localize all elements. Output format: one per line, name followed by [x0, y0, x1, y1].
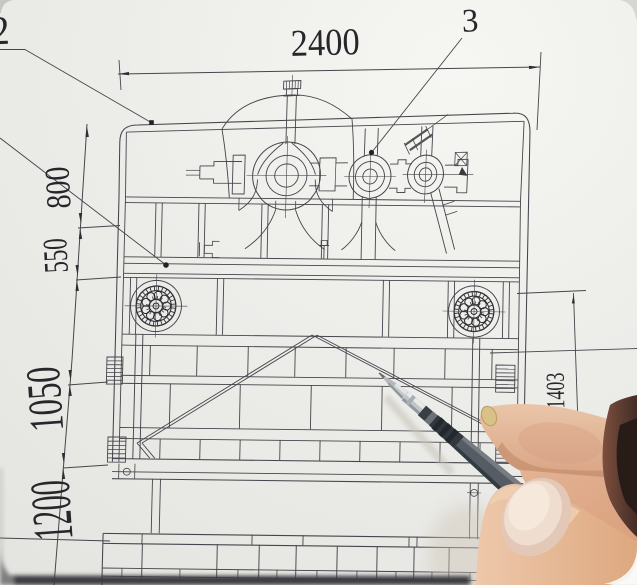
svg-text:550: 550 [37, 237, 76, 273]
svg-text:800: 800 [38, 166, 79, 210]
svg-text:1050: 1050 [15, 365, 74, 434]
svg-text:2400: 2400 [290, 21, 360, 65]
svg-text:3: 3 [461, 3, 479, 40]
svg-text:1403: 1403 [540, 372, 570, 408]
svg-text:1200: 1200 [17, 478, 85, 542]
svg-text:2: 2 [0, 8, 10, 54]
